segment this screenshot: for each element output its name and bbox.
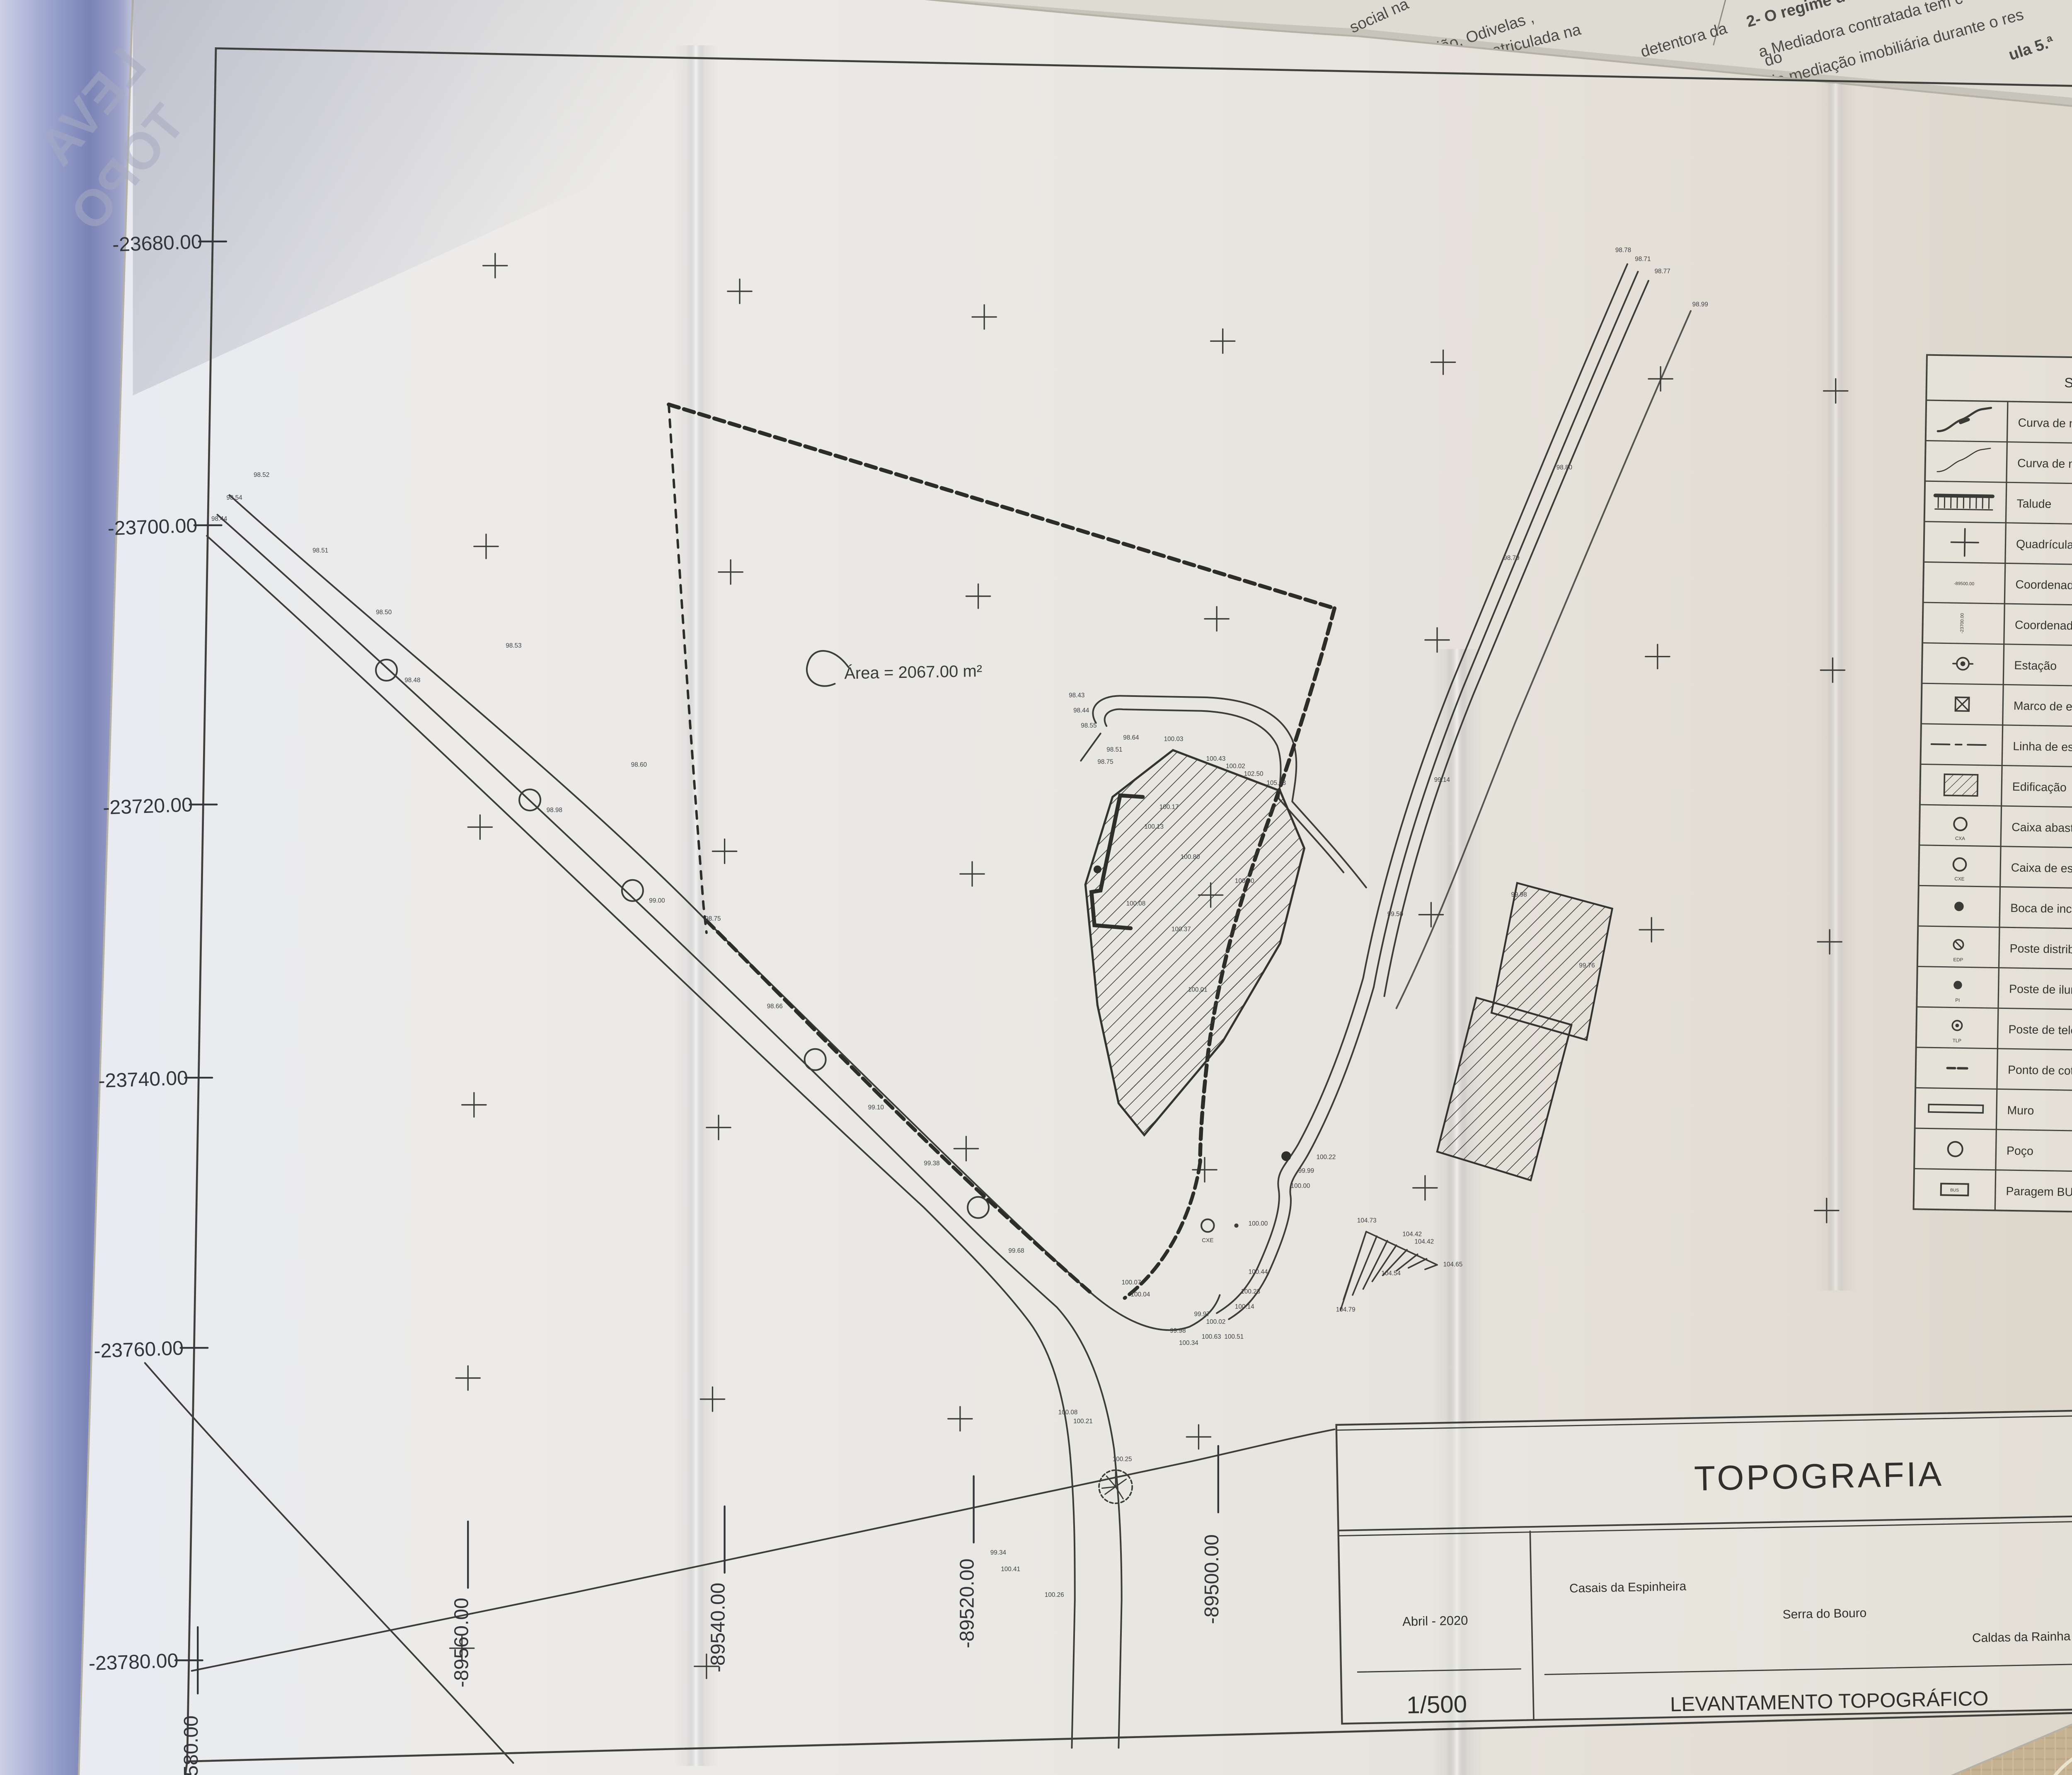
spot-elevation-label: 100.02: [1206, 1318, 1226, 1325]
spot-elevation-label: 98.75: [1097, 758, 1113, 765]
spot-elevation-label: 100.25: [1113, 1456, 1132, 1463]
left-axis-label: -23740.00: [98, 1066, 188, 1092]
spot-elevation-label: 100.01: [1188, 986, 1208, 993]
title-block-scale: 1/500: [1406, 1690, 1467, 1719]
spot-elevation-label: 100.02: [1226, 763, 1245, 770]
fold-crease: [1815, 83, 1857, 1290]
spot-elevation-label: 99.99: [1298, 1168, 1314, 1175]
legend-row-label: Muro: [2007, 1104, 2034, 1117]
spot-elevation-label: 104.73: [1357, 1217, 1377, 1224]
spot-elevation-label: 100.23: [1241, 1288, 1260, 1295]
spot-elevation-label: 98.52: [254, 472, 269, 479]
spot-elevation-label: 104.54: [1381, 1270, 1401, 1277]
legend-row-label: Talude: [2016, 497, 2051, 511]
spot-elevation-label: 100.43: [1206, 755, 1226, 762]
legend-symbol-abbrev: TLP: [1953, 1038, 1962, 1043]
spot-elevation-label: 104.65: [1443, 1261, 1463, 1268]
spot-elevation-label: 98.48: [404, 677, 420, 684]
legend-row-label: Caixa abastecimento de água: [2011, 821, 2072, 837]
area-label: Área = 2067.00 m²: [844, 662, 983, 683]
building-icon: [1944, 774, 1978, 796]
legend-row-label: Poste de iluminação: [2009, 982, 2072, 997]
legend-row-label: Poste de telecomunicações: [2008, 1023, 2072, 1038]
bottom-axis-label: -89540.00: [707, 1583, 729, 1673]
spot-elevation-label: 100.03: [1164, 736, 1184, 743]
spot-elevation-label: 100.17: [1159, 804, 1179, 811]
bottom-axis-label: -89580.00: [180, 1715, 202, 1775]
spot-height-icon: [1947, 1068, 1967, 1069]
spot-elevation-label: 98.55: [1081, 722, 1097, 729]
coordinate-p-icon: -89500.00: [1954, 581, 1974, 587]
spot-elevation-label: 98.80: [1556, 464, 1572, 471]
spot-elevation-label: 100.37: [1172, 926, 1191, 933]
spot-elevation-label: 99.97: [1194, 1311, 1210, 1318]
spot-elevation-label: 100.08: [1126, 900, 1146, 907]
legend-symbol-abbrev: EDP: [1953, 957, 1963, 962]
coordinate-p-icon: -89500.00: [1954, 581, 1974, 587]
spot-elevation-label: 99.76: [1579, 962, 1595, 969]
spot-elevation-label: 98.75: [705, 915, 721, 922]
spot-elevation-label: 102.50: [1244, 770, 1264, 777]
legend-symbol-abbrev: CXA: [1955, 836, 1965, 841]
sewer-box-label: CXE: [1202, 1237, 1213, 1243]
spot-elevation-label: 98.79: [1503, 555, 1519, 562]
legend-row-label: Curva de nível secundária: [2017, 457, 2072, 472]
spot-elevation-label: 98.77: [1655, 268, 1670, 275]
legend-symbol-abbrev: CXE: [1954, 876, 1964, 882]
legend-row-label: Coordenada m: [2015, 619, 2072, 633]
left-axis-label: -23760.00: [94, 1337, 184, 1362]
spot-elevation-label: 99.00: [649, 897, 665, 904]
spot-elevation-label: 98.71: [1635, 256, 1651, 263]
spot-elevation-label: 99.98: [1170, 1328, 1186, 1335]
legend-row-label: Poste distribuição EDP: [2009, 942, 2072, 957]
legend-row-label: Linha de estrema: [2013, 740, 2072, 754]
spot-point: [1234, 1224, 1238, 1228]
spot-elevation-label: 99.50: [1387, 911, 1403, 918]
svg-text:BUS: BUS: [1950, 1188, 1959, 1193]
spot-elevation-label: 100.14: [1235, 1303, 1254, 1310]
spot-elevation-label: 98.64: [1123, 734, 1139, 741]
legend-row-label: Poço: [2007, 1144, 2033, 1158]
spot-elevation-label: 98.51: [1106, 746, 1122, 753]
spot-elevation-label: 99.68: [1008, 1248, 1024, 1255]
bottom-axis-label: -89520.00: [956, 1558, 978, 1648]
spot-elevation-label: 98.44: [1073, 707, 1089, 714]
title-block-place-2: Serra do Bouro: [1782, 1606, 1866, 1622]
spot-elevation-label: 98.44: [211, 515, 228, 522]
left-axis-label: -23680.00: [112, 230, 202, 256]
legend-symbol-abbrev: PI: [1955, 998, 1960, 1003]
spot-elevation-label: 98.99: [1692, 301, 1708, 308]
legend-title: SIMBOLOGIA: [2064, 375, 2072, 392]
spot-elevation-label: 100.21: [1073, 1418, 1093, 1425]
spot-height-icon: [1947, 1068, 1967, 1069]
boundary-line-icon: [1932, 744, 1986, 745]
spot-elevation-label: 100.00: [1235, 878, 1254, 885]
spot-elevation-label: 99.98: [1511, 891, 1527, 898]
legend-row-label: Edificação: [2012, 780, 2067, 794]
spot-elevation-label: 104.42: [1414, 1238, 1434, 1245]
spot-elevation-label: 99.34: [990, 1549, 1007, 1556]
spot-elevation-label: 98.43: [1069, 692, 1084, 699]
title-block-title: TOPOGRAFIA: [1694, 1454, 1944, 1498]
spot-elevation-label: 100.07: [1122, 1279, 1141, 1286]
title-block: TOPOGRAFIA Abril - 2020 1/500 Casais da …: [1336, 1406, 2072, 1724]
fold-crease: [673, 45, 719, 1766]
spot-elevation-label: 100.00: [1249, 1220, 1268, 1227]
spot-elevation-label: 100.04: [1131, 1291, 1150, 1298]
spot-elevation-label: 104.42: [1402, 1231, 1422, 1238]
spot-elevation-label: 100.22: [1317, 1154, 1336, 1161]
legend-row-label: Ponto de cota: [2008, 1063, 2072, 1078]
photo-of-topographic-survey: social naAdrião, Odivelas ,15362107, mat…: [0, 0, 2072, 1775]
spot-elevation-label: 98.98: [547, 807, 562, 814]
spot-elevation-label: 100.26: [1045, 1591, 1064, 1598]
spot-elevation-label: 99.14: [1434, 776, 1450, 784]
spot-elevation-label: 100.51: [1224, 1333, 1244, 1340]
spot-elevation-label: 105.03: [1266, 779, 1286, 786]
spot-elevation-label: 100.44: [1249, 1269, 1268, 1276]
title-block-place-3: Caldas da Rainha: [1972, 1630, 2071, 1645]
spot-elevation-label: 100.80: [1181, 854, 1200, 861]
legend-row-label: Estação: [2014, 659, 2057, 673]
fire-hydrant-icon: [1094, 866, 1101, 873]
legend-row-label: Caixa de esgoto doméstico: [2011, 861, 2072, 876]
spot-elevation-label: 98.53: [506, 642, 521, 649]
legend: SIMBOLOGIA Curva de nível mestra com cot…: [1914, 355, 2072, 1215]
spot-elevation-label: 100.08: [1058, 1409, 1078, 1416]
left-axis-label: -23720.00: [103, 793, 193, 819]
spot-elevation-label: 104.79: [1336, 1306, 1356, 1313]
title-block-date: Abril - 2020: [1402, 1613, 1468, 1629]
spot-elevation-label: 98.66: [767, 1003, 783, 1010]
left-axis-label: -23700.00: [107, 514, 198, 540]
spot-elevation-label: 100.34: [1179, 1340, 1198, 1347]
spot-elevation-label: 100.13: [1144, 823, 1164, 830]
bottom-axis-label: -89560.00: [450, 1598, 472, 1688]
spot-elevation-label: 98.60: [631, 762, 647, 769]
building-icon: [1944, 774, 1978, 796]
spot-elevation-label: 98.54: [226, 494, 242, 501]
spot-elevation-label: 98.78: [1615, 247, 1631, 254]
spot-elevation-label: 100.63: [1202, 1333, 1221, 1340]
coordinate-m-icon: -23700.00: [1960, 613, 1965, 634]
bottom-axis-label: -89500.00: [1201, 1534, 1223, 1624]
legend-row-label: Boca de incêndio: [2010, 902, 2072, 916]
title-block-place-1: Casais da Espinheira: [1569, 1579, 1687, 1595]
spot-elevation-label: 99.10: [868, 1104, 884, 1111]
spot-elevation-label: 100.41: [1001, 1566, 1020, 1573]
station-icon: [1281, 1151, 1291, 1161]
legend-row-label: Coordenada p: [2015, 578, 2072, 592]
coordinate-m-icon: -23700.00: [1960, 613, 1965, 634]
legend-row-label: Paragem BUS: [2006, 1185, 2072, 1199]
spot-elevation-label: 100.00: [1291, 1183, 1310, 1190]
fire-hydrant-icon: [1955, 902, 1963, 911]
spot-elevation-label: 99.38: [924, 1160, 939, 1167]
spot-elevation-label: 98.51: [312, 547, 328, 554]
left-axis-label: -23780.00: [88, 1649, 179, 1675]
legend-row-label: Quadrícula de coordenação: [2016, 537, 2072, 553]
boundary-line-icon: [1932, 744, 1986, 745]
spot-elevation-label: 98.50: [376, 609, 392, 616]
